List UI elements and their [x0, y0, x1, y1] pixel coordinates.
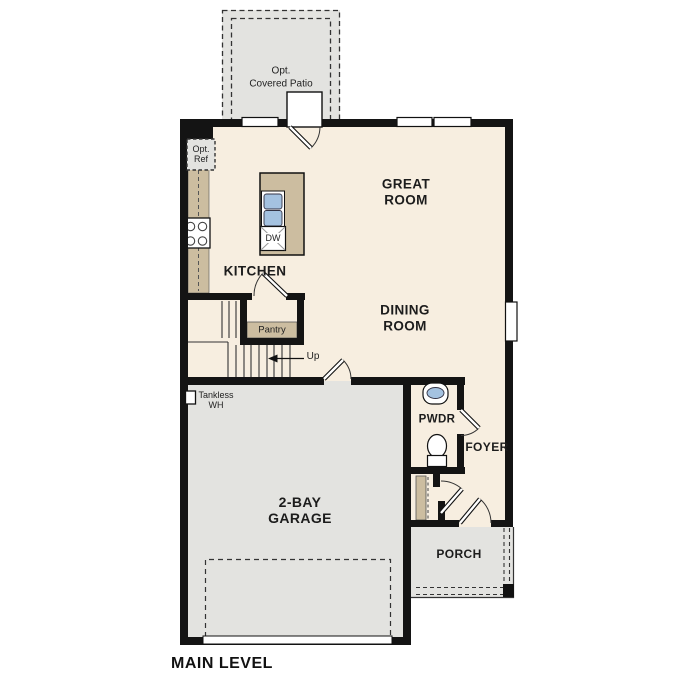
up-label: Up	[307, 351, 320, 364]
island-sink-icon	[262, 191, 285, 227]
powder-label: PWDR	[419, 414, 456, 427]
toilet-icon	[428, 435, 447, 467]
window	[242, 118, 278, 127]
porch-column	[503, 584, 514, 597]
garage-door	[203, 636, 392, 644]
opt-ref-label: Opt. Ref	[192, 144, 209, 164]
window	[397, 118, 432, 127]
dishwasher-label: DW	[265, 233, 282, 243]
patio-door-jamb	[287, 92, 322, 127]
water-heater-icon	[186, 391, 196, 404]
closet-rod	[416, 476, 428, 520]
patio-label: Opt. Covered Patio	[249, 66, 312, 91]
floor-plan-drawing	[0, 0, 687, 687]
floor-plan: Opt. Covered Patio Opt. Ref GREAT ROOM K…	[0, 0, 687, 687]
pantry-label: Pantry	[258, 325, 285, 336]
porch-label: PORCH	[436, 547, 481, 561]
window	[506, 302, 518, 341]
kitchen-label: KITCHEN	[224, 263, 287, 279]
garage-label: 2-BAY GARAGE	[268, 494, 332, 526]
powder-sink-icon	[423, 383, 448, 404]
foyer-label: FOYER	[465, 440, 508, 454]
great-room-label: GREAT ROOM	[382, 177, 430, 208]
tankless-wh-label: Tankless WH	[198, 390, 233, 410]
page-title: MAIN LEVEL	[171, 655, 273, 673]
window	[434, 118, 471, 127]
dining-room-label: DINING ROOM	[380, 303, 430, 334]
